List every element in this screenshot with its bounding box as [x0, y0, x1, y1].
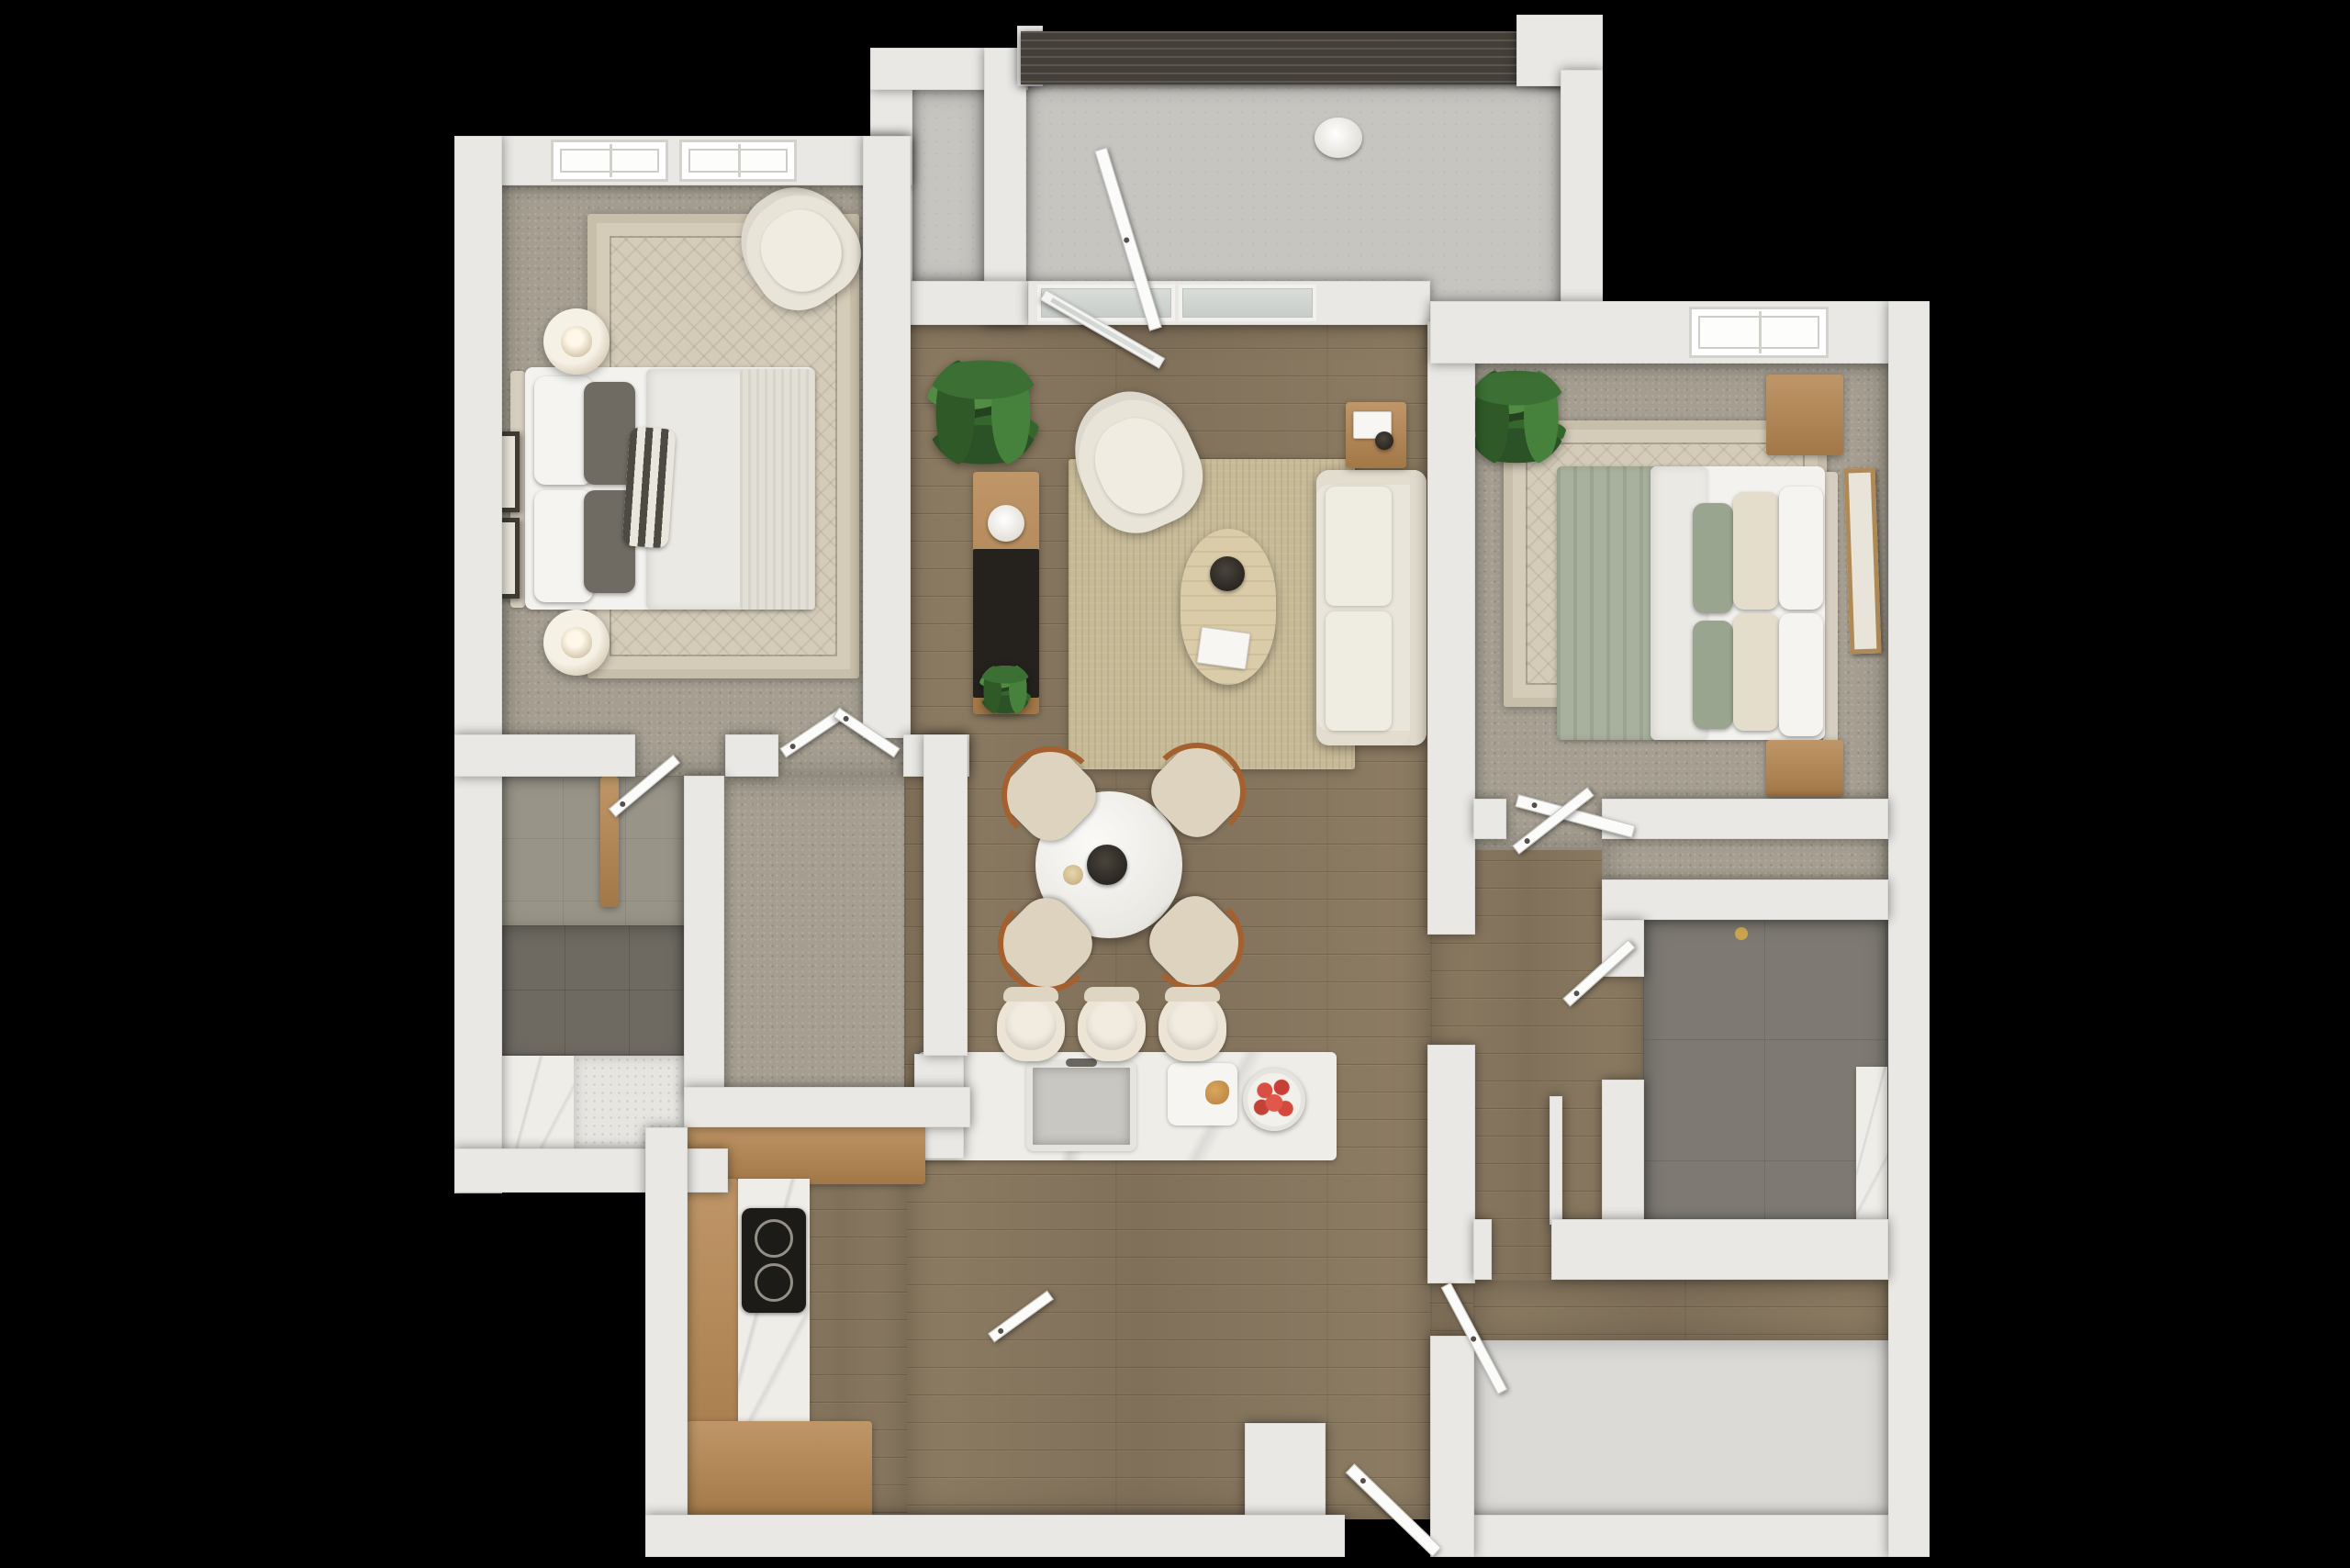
floor-plan-canvas [0, 0, 2350, 1568]
bath2-basin [1652, 925, 1720, 971]
linen-hangers [1476, 1111, 1544, 1221]
refrigerator [872, 1423, 975, 1520]
bed2-pillow-green-1 [1693, 503, 1733, 613]
nightstand-2b [1766, 740, 1843, 797]
coffee-table-magazine [1196, 626, 1250, 669]
nightstand-lamp-2 [543, 610, 610, 676]
console-vase [988, 505, 1024, 542]
fruit-bowl [1243, 1069, 1305, 1131]
bed2-pillow-beige-2 [1733, 613, 1779, 731]
bath1-mirror [503, 778, 525, 909]
wall-right-outer [1888, 301, 1930, 1557]
wall-closet2-bottom [1602, 879, 1888, 920]
pantry-cabinet [975, 1348, 1087, 1520]
cutting-board [1168, 1063, 1237, 1126]
wall-stub-kitchen [1245, 1423, 1326, 1520]
wall-laundry-left [1430, 1336, 1474, 1557]
wall-bath1-closet1 [684, 776, 724, 1094]
sofa-cushion-1 [1326, 487, 1392, 606]
bed1-pillow-stripe [622, 426, 677, 548]
shower-fixture [648, 1059, 677, 1089]
tub-faucet [1671, 1131, 1698, 1159]
glass-door-pane-2 [1179, 285, 1316, 321]
bed2-pillow-beige-1 [1733, 492, 1779, 610]
shower-marble-panel [500, 1056, 576, 1155]
balcony-railing [1021, 31, 1564, 84]
dryer [1753, 1346, 1873, 1506]
bedroom2-tv [1515, 496, 1526, 632]
cabinet-bottom-run [687, 1421, 872, 1520]
side-table-vase [1375, 431, 1393, 450]
bed2-blanket [1557, 466, 1654, 740]
wall-center-lower [1427, 1045, 1475, 1283]
hall-nook-wall [1550, 1096, 1562, 1225]
closet1-rack-left [720, 801, 780, 1076]
bed2-pillow-white-1 [1779, 487, 1823, 610]
floor-storage [907, 88, 984, 286]
art-frame-leaning [1843, 467, 1881, 654]
floor-laundry-wood [1473, 1280, 1888, 1344]
console-plant [979, 663, 1032, 716]
bed2-window [1689, 307, 1829, 358]
wall-balcony-right [1561, 70, 1603, 325]
sofa-cushion-2 [1326, 611, 1392, 731]
wall-bottom-east [1452, 1515, 1890, 1557]
bar-stool-1 [997, 991, 1065, 1061]
living-plant [925, 354, 1041, 470]
patio-chair-left [1166, 83, 1276, 215]
wall-bed2-bottom [1602, 799, 1888, 839]
bed2-pillow-white-2 [1779, 613, 1823, 736]
wall-left-outer [454, 136, 502, 1193]
tub-marble-deck [1856, 1067, 1887, 1219]
wall-bed1-bottom-west [454, 734, 635, 777]
wall-hall-bath2-lower [1602, 1080, 1644, 1225]
laundry-cabinet [1476, 1364, 1568, 1515]
wall-storage-bottom [911, 281, 1028, 325]
wall-closet1-right [923, 734, 968, 1056]
wall-bed1-right [863, 136, 911, 738]
bed1-window-2 [679, 140, 797, 182]
coffee-table-bowl [1210, 556, 1245, 591]
bed2-pillow-green-2 [1693, 621, 1733, 729]
bath2-gold-drain [1735, 927, 1748, 940]
patio-plate [1315, 118, 1362, 158]
wall-bed2-bottom-stub [1473, 799, 1506, 839]
wall-kitchen-left [645, 1127, 688, 1517]
bed1-throw [740, 369, 815, 610]
bath1-side-cabinet [600, 777, 619, 907]
dining-cup [1063, 865, 1083, 885]
patio-chair-right [1406, 83, 1516, 215]
wall-laundry-top [1551, 1219, 1888, 1280]
bath2-mat [1707, 1002, 1797, 1059]
nightstand-lamp-1 [543, 308, 610, 375]
wall-closet1-bottom [684, 1087, 970, 1127]
bath2-toilet [1757, 918, 1829, 980]
bar-stool-2 [1078, 991, 1146, 1061]
wall-bottom-west [645, 1515, 1345, 1557]
cooktop [742, 1208, 806, 1313]
washer [1630, 1346, 1750, 1506]
bath1-basin [540, 801, 599, 872]
dining-bowl [1087, 845, 1127, 885]
wall-bed1-bottom-mid [725, 734, 778, 777]
wall-laundry-top-stub [1473, 1219, 1492, 1280]
kitchen-sink [1026, 1061, 1136, 1151]
wall-center-upper [1427, 321, 1475, 935]
bed2-headboard [1823, 472, 1838, 744]
bar-stool-3 [1158, 991, 1226, 1061]
nightstand-2a [1766, 375, 1843, 455]
bath1-toilet [529, 931, 630, 991]
bed1-window-1 [551, 140, 668, 182]
bedroom2-plant [1465, 365, 1568, 468]
pantry-shelf-unit [1087, 1370, 1245, 1520]
